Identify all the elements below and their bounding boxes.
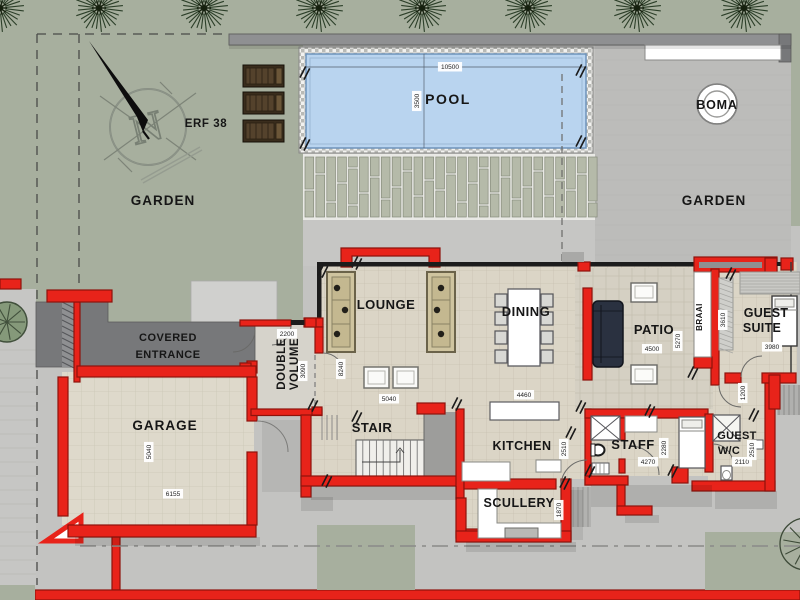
svg-text:STAFF: STAFF [611, 437, 654, 452]
svg-text:2200: 2200 [280, 331, 295, 338]
svg-text:4270: 4270 [641, 459, 656, 466]
svg-text:SCULLERY: SCULLERY [484, 496, 555, 510]
svg-text:3500: 3500 [414, 93, 421, 108]
svg-text:LOUNGE: LOUNGE [357, 297, 416, 312]
svg-text:2280: 2280 [661, 440, 668, 455]
svg-text:1200: 1200 [740, 385, 747, 400]
svg-text:SUITE: SUITE [743, 321, 781, 335]
svg-text:1870: 1870 [556, 502, 563, 517]
svg-text:3980: 3980 [765, 344, 780, 351]
svg-text:BRAAI: BRAAI [695, 303, 704, 331]
svg-text:W/C: W/C [718, 445, 740, 457]
svg-text:3610: 3610 [720, 312, 727, 327]
svg-text:GARDEN: GARDEN [131, 193, 196, 208]
svg-text:GUEST: GUEST [744, 306, 789, 320]
svg-text:5040: 5040 [146, 444, 153, 459]
svg-text:PATIO: PATIO [634, 322, 674, 337]
svg-text:DINING: DINING [502, 304, 551, 319]
svg-text:5270: 5270 [675, 333, 682, 348]
svg-text:5040: 5040 [382, 396, 397, 403]
svg-text:GARDEN: GARDEN [682, 193, 747, 208]
svg-text:BOMA: BOMA [696, 98, 737, 112]
svg-text:10500: 10500 [441, 64, 459, 71]
svg-text:STAIR: STAIR [352, 420, 393, 435]
svg-text:ERF 38: ERF 38 [185, 118, 228, 130]
svg-text:4460: 4460 [517, 392, 532, 399]
svg-text:4500: 4500 [645, 346, 660, 353]
svg-text:GARAGE: GARAGE [132, 418, 197, 433]
svg-text:2510: 2510 [561, 441, 568, 456]
svg-text:POOL: POOL [425, 91, 471, 107]
svg-text:3090: 3090 [300, 363, 307, 378]
svg-text:KITCHEN: KITCHEN [492, 439, 551, 453]
svg-text:ENTRANCE: ENTRANCE [135, 349, 200, 361]
svg-text:6155: 6155 [166, 491, 181, 498]
svg-text:DOUBLE: DOUBLE [276, 338, 288, 390]
svg-text:2510: 2510 [749, 442, 756, 457]
svg-text:COVERED: COVERED [139, 332, 197, 344]
svg-text:8240: 8240 [338, 361, 345, 376]
